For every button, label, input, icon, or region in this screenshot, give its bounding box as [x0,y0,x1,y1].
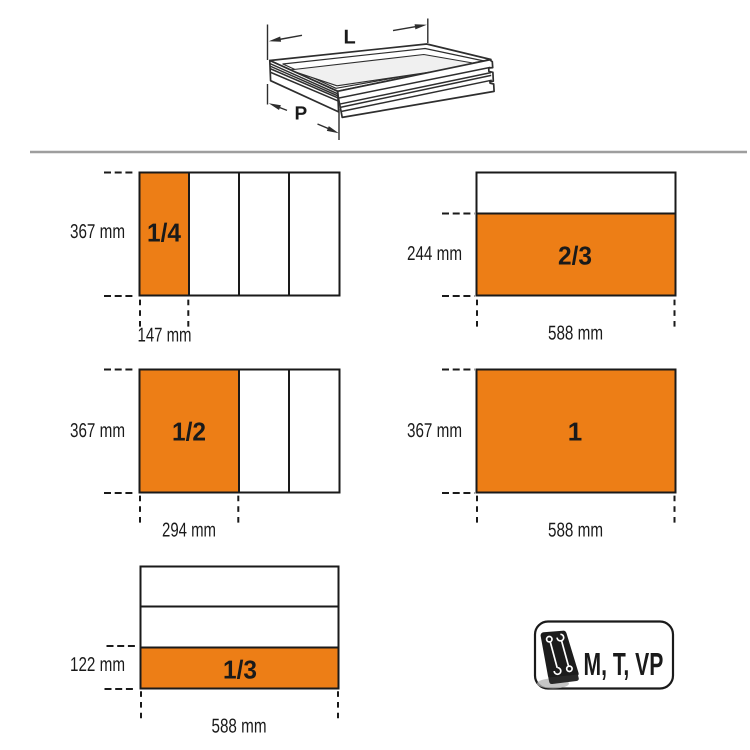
svg-text:367 mm: 367 mm [407,420,462,442]
svg-text:588 mm: 588 mm [212,716,267,738]
svg-text:244 mm: 244 mm [407,243,462,265]
svg-text:367 mm: 367 mm [70,420,125,442]
svg-text:122 mm: 122 mm [70,654,125,676]
svg-text:1/3: 1/3 [223,655,257,685]
svg-text:1/2: 1/2 [172,417,206,447]
svg-text:294 mm: 294 mm [162,520,216,542]
svg-text:P: P [295,104,308,125]
svg-text:147 mm: 147 mm [138,325,192,347]
svg-text:588 mm: 588 mm [548,323,603,345]
svg-text:1: 1 [568,417,582,447]
svg-text:M, T, VP: M, T, VP [584,646,664,682]
svg-text:L: L [344,26,356,48]
svg-text:1/4: 1/4 [147,218,181,248]
svg-text:367 mm: 367 mm [70,221,125,243]
svg-text:2/3: 2/3 [558,241,592,271]
svg-text:588 mm: 588 mm [548,520,603,542]
